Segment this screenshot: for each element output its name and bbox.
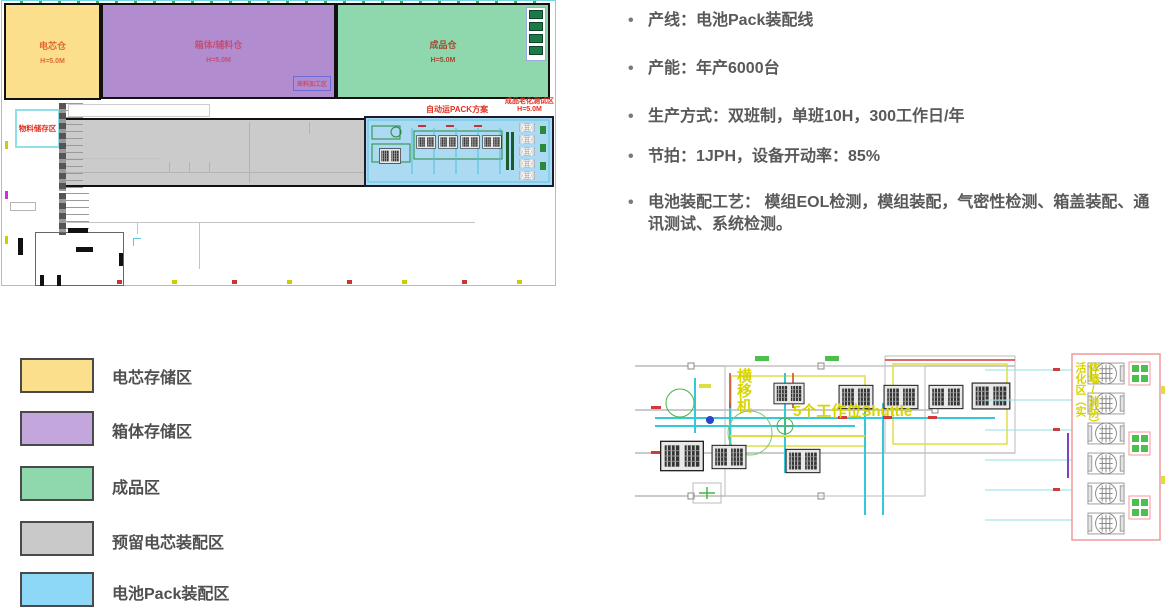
grid-tick	[5, 191, 8, 199]
aging-test-area-height: H=5.0M	[505, 106, 554, 114]
reserved-cell-assembly-zone	[62, 118, 367, 187]
incoming-processing-label: 来料加工区	[297, 79, 327, 88]
spec-process: • 电池装配工艺： 模组EOL检测，模组装配，气密性检测、箱盖装配、通讯测试、系…	[628, 192, 1165, 236]
incoming-processing-area: 来料加工区	[293, 76, 331, 91]
spec-production-line: • 产线：电池Pack装配线	[628, 10, 1165, 32]
legend-label-box-storage: 箱体存储区	[112, 418, 192, 442]
spec-text: 电池装配工艺： 模组EOL检测，模组装配，气密性检测、箱盖装配、通讯测试、系统检…	[648, 192, 1165, 236]
factory-floor-plan: 电芯仓 H=5.0M 箱体/辅料仓 H=5.0M 来料加工区 成品仓 H=5.0…	[1, 0, 556, 286]
spec-text: 产线：电池Pack装配线	[648, 10, 813, 32]
bullet-icon: •	[628, 146, 648, 168]
bullet-icon: •	[628, 106, 648, 128]
spec-takt: • 节拍：1JPH，设备开动率：85%	[628, 146, 1165, 168]
door-mark	[68, 228, 88, 233]
battery-pack-line-overview-slide: 电芯仓 H=5.0M 箱体/辅料仓 H=5.0M 来料加工区 成品仓 H=5.0…	[0, 0, 1173, 608]
legend-swatch-pack-assembly	[20, 572, 94, 607]
legend-swatch-box-storage	[20, 411, 94, 446]
door-mark	[57, 275, 61, 286]
transfer-machine-label: 横移机	[733, 368, 754, 413]
spec-text: 产能：年产6000台	[648, 58, 780, 80]
shelf-outline	[68, 104, 210, 117]
spec-capacity: • 产能：年产6000台	[628, 58, 1165, 80]
cell-warehouse-height: H=5.0M	[40, 58, 65, 65]
dock-equipment-strip	[526, 7, 546, 61]
cad-mark	[133, 238, 141, 246]
activation-area-label: 活化区（实体墙/消防）	[1073, 362, 1099, 426]
box-warehouse-height: H=5.0M	[206, 57, 231, 64]
pack-line-mini-cad	[366, 118, 552, 185]
charger-label-box	[1129, 496, 1150, 519]
door-mark	[76, 247, 93, 252]
spec-shift-mode: • 生产方式：双班制，单班10H，300工作日/年	[628, 106, 1165, 128]
agv-plan-note: 自动运PACK方案	[426, 104, 488, 115]
finished-warehouse-label: 成品仓	[429, 38, 456, 51]
aging-roller-column	[520, 123, 535, 180]
bullet-icon: •	[628, 58, 648, 80]
spec-text: 节拍：1JPH，设备开动率：85%	[648, 146, 880, 168]
aging-test-area-label: 成品老化测试区	[505, 98, 554, 106]
door-mark	[119, 253, 123, 266]
grid-tick	[5, 141, 8, 149]
battery-pack-assembly-zone	[364, 116, 554, 187]
legend-swatch-reserved	[20, 521, 94, 556]
material-storage-label: 物料储存区	[19, 123, 57, 134]
door-mark	[40, 275, 44, 286]
grid-tick	[5, 236, 8, 244]
legend-label-pack-assembly: 电池Pack装配区	[112, 580, 229, 604]
cell-warehouse-label: 电芯仓	[39, 39, 66, 52]
finished-goods-warehouse-zone: 成品仓 H=5.0M	[336, 3, 550, 99]
charger-label-box	[1129, 432, 1150, 455]
spec-text: 生产方式：双班制，单班10H，300工作日/年	[648, 106, 965, 128]
grid-ticks-bottom	[62, 280, 532, 284]
material-storage-area: 物料储存区	[15, 109, 60, 148]
bullet-icon: •	[628, 10, 648, 32]
legend-swatch-cell-storage	[20, 358, 94, 393]
utility-room	[35, 232, 124, 286]
box-warehouse-zone: 箱体/辅料仓 H=5.0M 来料加工区	[101, 3, 336, 99]
box-warehouse-label: 箱体/辅料仓	[195, 38, 243, 51]
legend-label-finished: 成品区	[112, 474, 160, 498]
aging-test-area-note: 成品老化测试区 H=5.0M	[505, 98, 554, 114]
door-mark	[18, 238, 23, 255]
legend-label-cell-storage: 电芯存储区	[112, 364, 192, 388]
pack-line-detail-drawing: 横移机 5个工作位Shuttle 活化区（实体墙/消防）	[635, 348, 1165, 548]
legend-swatch-finished	[20, 466, 94, 501]
finished-warehouse-height: H=5.0M	[431, 57, 456, 64]
shuttle-workstations-label: 5个工作位Shuttle	[793, 400, 912, 421]
small-structure	[10, 202, 36, 211]
cell-warehouse-zone: 电芯仓 H=5.0M	[4, 3, 101, 100]
bullet-icon: •	[628, 192, 648, 236]
legend-label-reserved: 预留电芯装配区	[112, 529, 224, 553]
charger-label-box	[1129, 362, 1150, 385]
